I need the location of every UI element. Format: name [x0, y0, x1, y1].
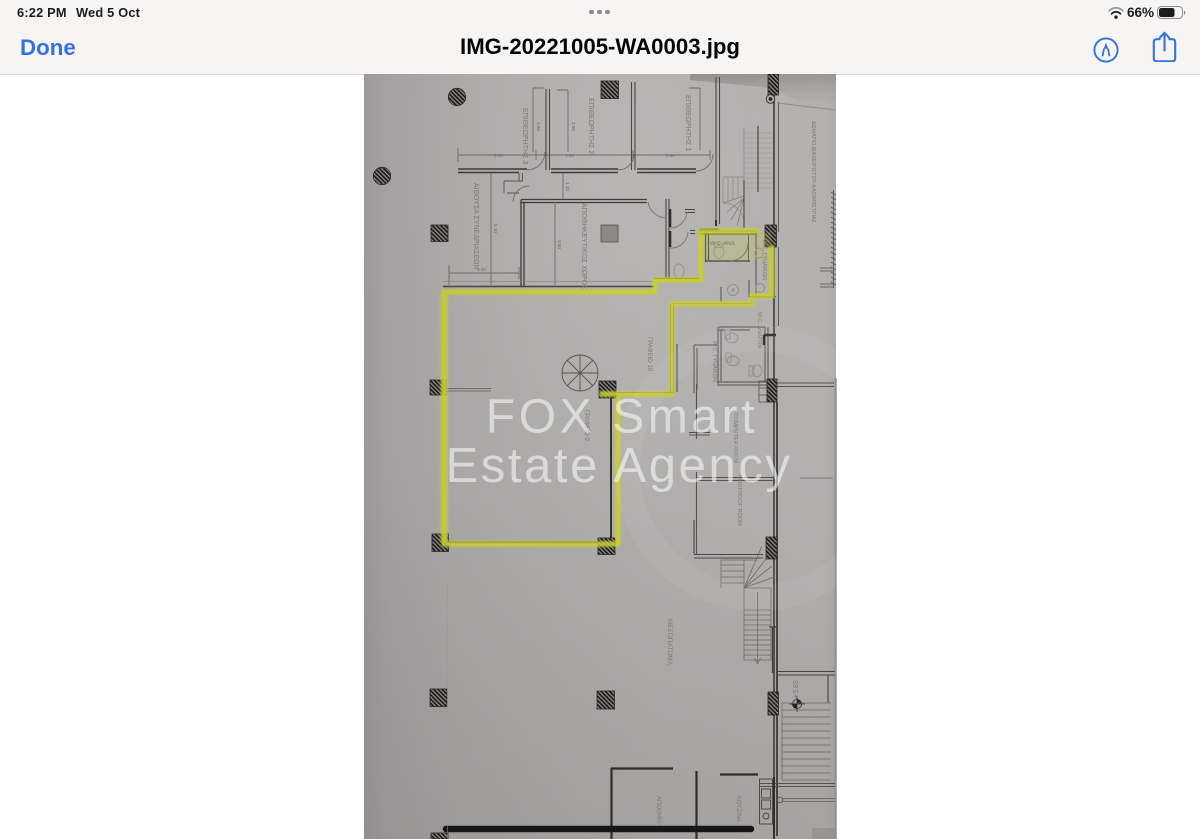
svg-text:ΚΟΥΖΙΝΑ: ΚΟΥΖΙΝΑ — [735, 796, 741, 822]
svg-text:1.20: 1.20 — [565, 182, 570, 191]
svg-text:ΕΠΙΘΕΩΡΗΤΗΣ 2: ΕΠΙΘΕΩΡΗΤΗΣ 2 — [587, 98, 594, 154]
svg-text:3.80: 3.80 — [557, 240, 562, 249]
svg-text:3.80: 3.80 — [536, 122, 541, 131]
svg-text:Estate Agency: Estate Agency — [445, 439, 792, 493]
svg-text:ΕΠΙΘΕΩΡΗΤΗΣ 3: ΕΠΙΘΕΩΡΗΤΗΣ 3 — [521, 108, 528, 164]
svg-text:3.30: 3.30 — [477, 267, 486, 272]
svg-text:ΑΠΟΘΗΚΕΥΤΙΚΟΣ ΧΩΡΟΣ: ΑΠΟΘΗΚΕΥΤΙΚΟΣ ΧΩΡΟΣ — [580, 203, 587, 290]
svg-text:3.90: 3.90 — [494, 153, 503, 158]
svg-text:+3.85: +3.85 — [793, 680, 800, 698]
svg-text:ΓΡΑΦΕΙΟ 10: ΓΡΑΦΕΙΟ 10 — [646, 337, 652, 372]
svg-text:ΔΩΜΑΤΙΟ ΔΙΑΧΕΙΡΙΣΤΟΥ-ΚΑΘΑΡΙΣΤΡ: ΔΩΜΑΤΙΟ ΔΙΑΧΕΙΡΙΣΤΟΥ-ΚΑΘΑΡΙΣΤΡΙΑΣ — [810, 121, 816, 224]
svg-text:W.C. ΑΝΔ: W.C. ΑΝΔ — [710, 241, 735, 247]
svg-text:ΕΠΙΘΕΩΡΗΤΗΣ 1: ΕΠΙΘΕΩΡΗΤΗΣ 1 — [684, 95, 691, 151]
svg-text:ΑΠΟΘΗΚΗ: ΑΠΟΘΗΚΗ — [655, 796, 661, 826]
svg-text:FOX Smart: FOX Smart — [486, 391, 758, 444]
svg-text:5.10: 5.10 — [493, 224, 498, 233]
svg-text:W.C. ΓΥΝΑΙΚΩΝ: W.C. ΓΥΝΑΙΚΩΝ — [761, 239, 767, 280]
svg-text:3.80: 3.80 — [571, 122, 576, 131]
svg-text:ΑΙΘΟΥΣΑ ΣΥΝΕΔΡΙΑΣΕΩΝ: ΑΙΘΟΥΣΑ ΣΥΝΕΔΡΙΑΣΕΩΝ — [472, 183, 479, 269]
svg-text:3.60: 3.60 — [666, 153, 675, 158]
svg-text:3.80: 3.80 — [565, 153, 574, 158]
svg-text:ΜΕΣΟΠΑΤΩΜΑ: ΜΕΣΟΠΑΤΩΜΑ — [666, 619, 673, 665]
